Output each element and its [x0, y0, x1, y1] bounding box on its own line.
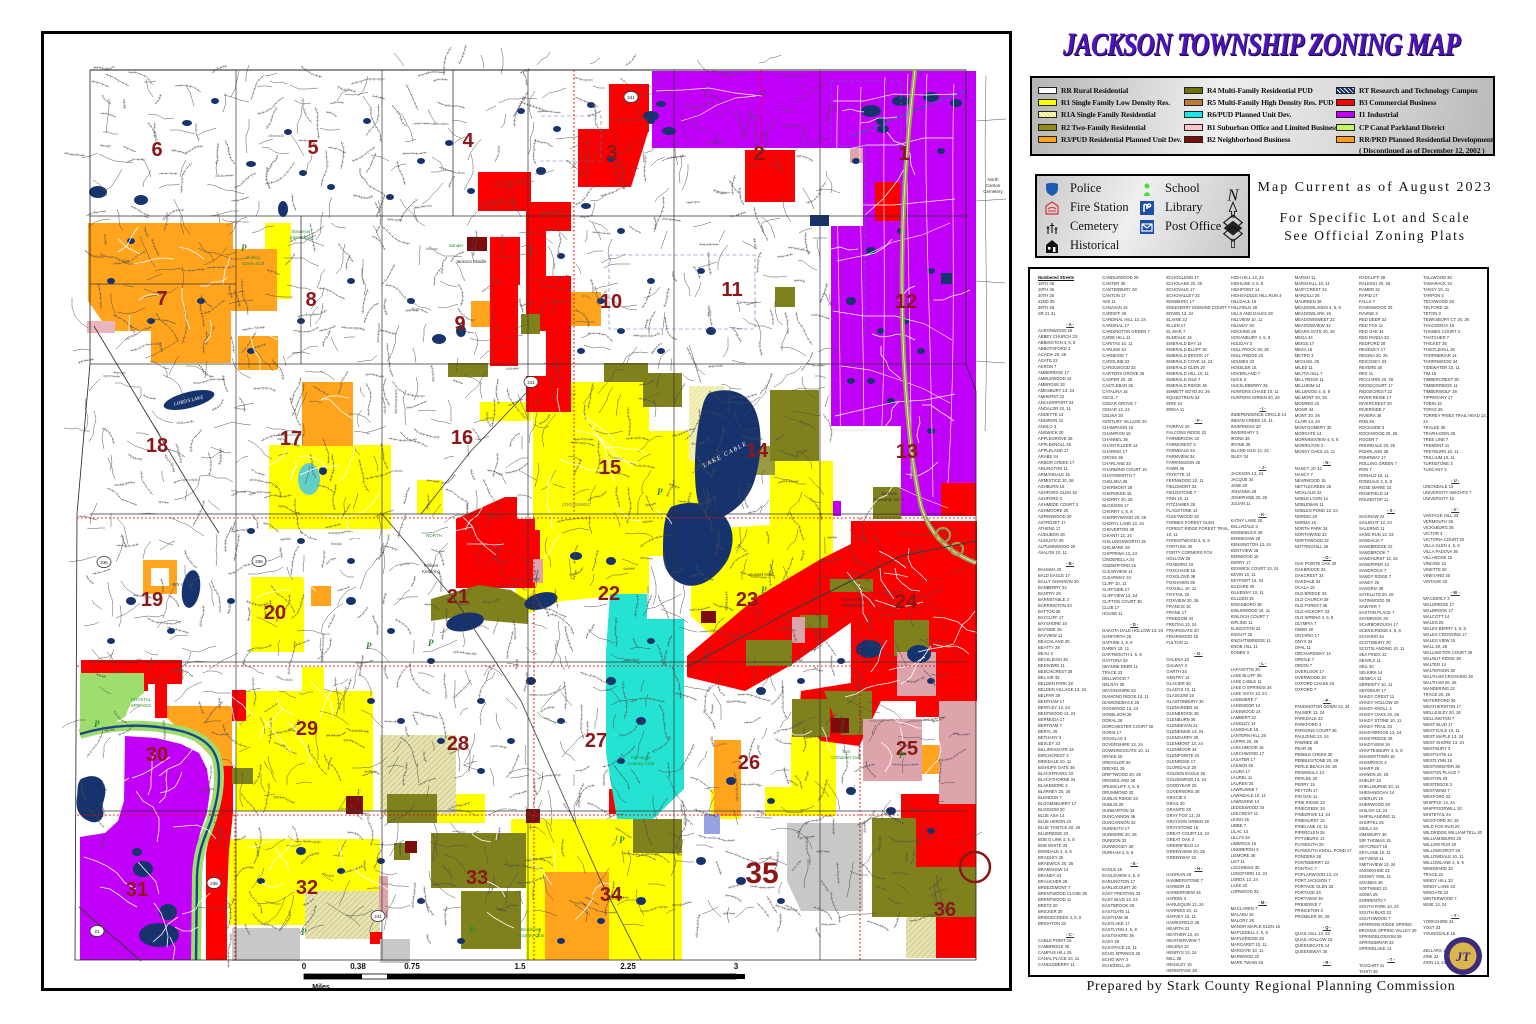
- svg-text:P: P: [366, 641, 372, 651]
- svg-text:Tam: Tam: [841, 749, 850, 754]
- svg-text:20: 20: [263, 602, 285, 624]
- svg-text:Burial Park: Burial Park: [841, 603, 864, 608]
- svg-text:1.5: 1.5: [514, 962, 526, 971]
- svg-text:23: 23: [735, 589, 757, 611]
- svg-text:Country Club: Country Club: [517, 933, 544, 938]
- svg-text:Canton: Canton: [985, 183, 1000, 188]
- svg-text:8: 8: [305, 289, 316, 311]
- svg-text:O'Shanter Golf: O'Shanter Golf: [831, 755, 861, 760]
- svg-text:35: 35: [745, 857, 778, 890]
- svg-text:236: 236: [100, 559, 108, 564]
- svg-text:7: 7: [156, 288, 167, 310]
- svg-text:26: 26: [737, 752, 759, 774]
- svg-text:0.75: 0.75: [404, 962, 420, 971]
- svg-text:15: 15: [598, 457, 620, 479]
- svg-text:Cemetery: Cemetery: [983, 189, 1003, 194]
- svg-text:CRYSTAL: CRYSTAL: [130, 697, 151, 702]
- svg-text:P: P: [761, 585, 767, 595]
- svg-text:Glenmoor: Glenmoor: [631, 755, 651, 760]
- svg-text:17: 17: [279, 428, 301, 450]
- svg-text:29: 29: [295, 718, 317, 740]
- svg-text:28: 28: [446, 733, 468, 755]
- svg-text:18: 18: [145, 435, 167, 457]
- svg-text:33: 33: [465, 867, 487, 889]
- svg-text:P: P: [94, 719, 100, 729]
- svg-text:241: 241: [527, 379, 535, 384]
- svg-text:2.25: 2.25: [620, 962, 636, 971]
- svg-text:Elementary: Elementary: [289, 235, 313, 240]
- svg-text:13: 13: [895, 441, 917, 463]
- svg-text:(330)4529801: (330)4529801: [561, 502, 590, 507]
- svg-text:16: 16: [450, 427, 472, 449]
- svg-text:Strausser: Strausser: [291, 229, 311, 234]
- svg-text:30: 30: [145, 744, 167, 766]
- svg-text:Jackson Middle: Jackson Middle: [455, 259, 487, 264]
- svg-text:11: 11: [721, 279, 742, 301]
- svg-text:Sunset Hills: Sunset Hills: [841, 597, 866, 602]
- svg-text:Country Club: Country Club: [627, 761, 654, 766]
- svg-text:Rolling: Rolling: [246, 255, 260, 260]
- svg-text:P: P: [657, 487, 663, 497]
- svg-text:William: William: [423, 563, 438, 568]
- svg-text:0.38: 0.38: [350, 962, 366, 971]
- svg-text:3: 3: [606, 142, 617, 164]
- svg-text:P: P: [241, 243, 247, 253]
- svg-text:31: 31: [125, 879, 147, 901]
- svg-text:Brookside: Brookside: [520, 927, 541, 932]
- svg-text:P: P: [899, 750, 905, 760]
- svg-text:1: 1: [898, 143, 909, 165]
- svg-text:SPRINGS: SPRINGS: [130, 703, 150, 708]
- svg-text:NORTH: NORTH: [426, 533, 442, 538]
- svg-text:32: 32: [295, 877, 317, 899]
- svg-text:P: P: [469, 925, 475, 935]
- svg-text:21: 21: [94, 928, 100, 933]
- svg-text:Sander: Sander: [448, 243, 463, 248]
- svg-text:5: 5: [307, 137, 318, 159]
- svg-text:P: P: [428, 638, 434, 648]
- svg-text:6: 6: [151, 139, 162, 161]
- svg-text:12: 12: [894, 291, 916, 313]
- svg-text:4: 4: [462, 130, 474, 152]
- svg-text:34: 34: [599, 884, 622, 906]
- svg-text:21: 21: [446, 586, 468, 608]
- svg-text:0: 0: [301, 962, 306, 971]
- svg-text:19: 19: [140, 589, 162, 611]
- svg-text:9: 9: [454, 313, 465, 335]
- svg-text:24: 24: [894, 591, 917, 613]
- svg-text:P: P: [301, 927, 307, 937]
- svg-text:Township No. 4: Township No. 4: [873, 497, 904, 502]
- svg-text:Sunset Hills: Sunset Hills: [749, 572, 774, 577]
- svg-text:North: North: [987, 177, 999, 182]
- svg-text:Kettering: Kettering: [421, 569, 440, 574]
- svg-text:236: 236: [210, 880, 218, 885]
- svg-text:3: 3: [733, 962, 738, 971]
- svg-text:P: P: [619, 835, 625, 845]
- svg-text:241: 241: [627, 94, 635, 99]
- svg-text:2: 2: [753, 143, 764, 165]
- svg-text:36: 36: [933, 899, 955, 921]
- svg-text:14: 14: [745, 440, 768, 462]
- svg-text:27: 27: [584, 730, 606, 752]
- svg-text:241: 241: [374, 913, 382, 918]
- svg-text:10: 10: [599, 291, 621, 313]
- svg-text:Miles: Miles: [312, 984, 330, 988]
- svg-text:JT: JT: [1455, 949, 1472, 964]
- svg-text:Jackson: Jackson: [880, 491, 897, 496]
- svg-text:Green Golf: Green Golf: [241, 261, 264, 266]
- svg-text:236: 236: [255, 558, 263, 563]
- svg-text:22: 22: [597, 583, 619, 605]
- svg-text:PIN OAK: PIN OAK: [171, 582, 190, 587]
